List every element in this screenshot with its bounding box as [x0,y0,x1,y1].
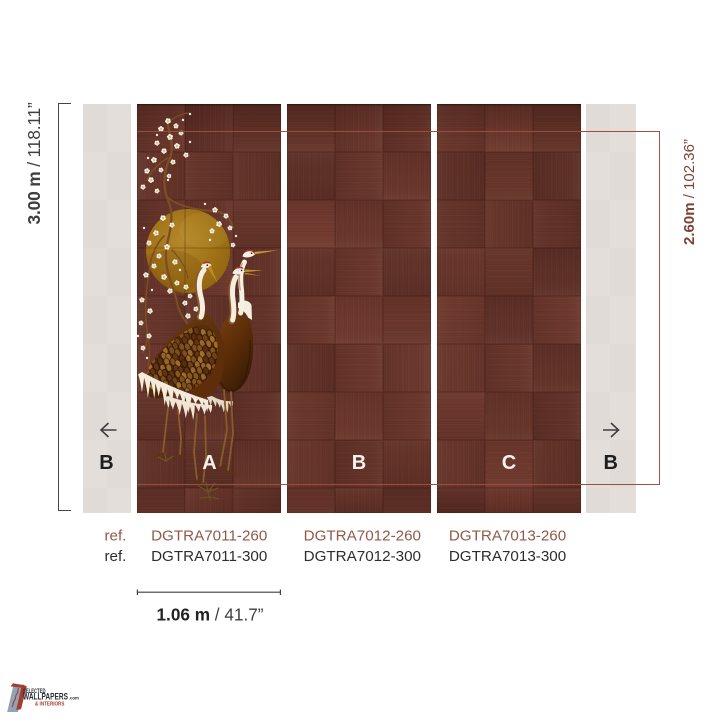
svg-text:3.00 m / 118.11”: 3.00 m / 118.11” [24,102,44,225]
svg-text:A: A [202,452,216,474]
svg-text:1.06 m / 41.7”: 1.06 m / 41.7” [156,605,263,625]
svg-text:DGTRA7013-260: DGTRA7013-260 [449,528,566,545]
svg-text:DGTRA7011-260: DGTRA7011-260 [151,528,267,545]
svg-text:B: B [352,452,366,474]
svg-text:& INTERIORS: & INTERIORS [35,701,65,707]
svg-text:2.60m / 102.36”: 2.60m / 102.36” [681,139,698,245]
svg-text:DGTRA7012-260: DGTRA7012-260 [304,528,421,545]
svg-text:C: C [502,452,516,474]
svg-text:B: B [99,452,113,474]
svg-text:ref.: ref. [104,548,126,565]
svg-text:DGTRA7011-300: DGTRA7011-300 [151,548,267,565]
svg-text:.com: .com [69,696,79,701]
svg-text:DGTRA7012-300: DGTRA7012-300 [304,548,421,565]
svg-text:B: B [603,452,617,474]
svg-text:WALLPAPERS: WALLPAPERS [23,692,68,702]
svg-text:DGTRA7013-300: DGTRA7013-300 [449,548,566,565]
svg-text:ref.: ref. [104,528,126,545]
